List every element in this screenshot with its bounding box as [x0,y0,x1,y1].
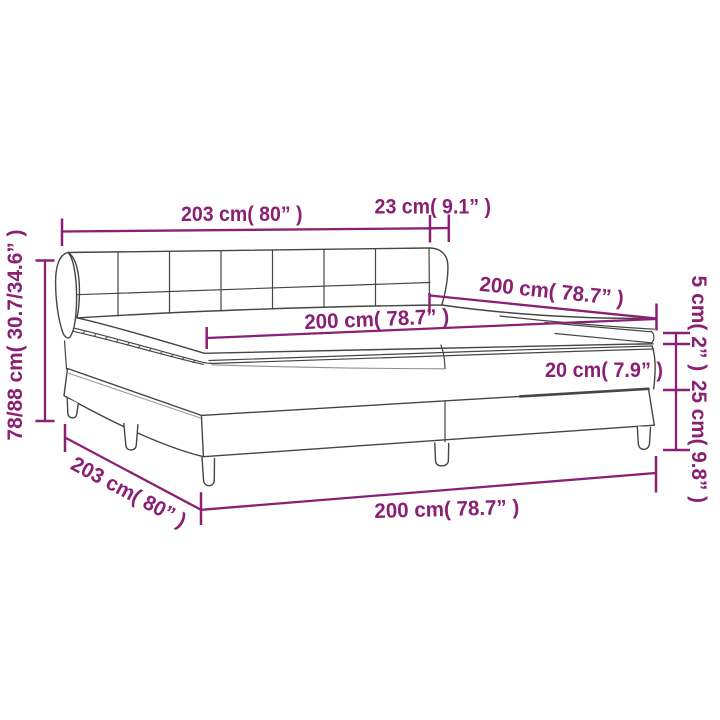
svg-text:25 cm( 9.8” ): 25 cm( 9.8” ) [687,380,710,503]
svg-text:20 cm( 7.9” ): 20 cm( 7.9” ) [545,359,663,382]
svg-text:78/88 cm( 30.7/34.6” ): 78/88 cm( 30.7/34.6” ) [4,230,27,441]
svg-text:5 cm( 2” ): 5 cm( 2” ) [687,276,710,372]
svg-text:200 cm( 78.7” ): 200 cm( 78.7” ) [374,496,520,523]
svg-text:203 cm( 80” ): 203 cm( 80” ) [181,203,303,226]
svg-text:23 cm( 9.1” ): 23 cm( 9.1” ) [375,196,492,219]
